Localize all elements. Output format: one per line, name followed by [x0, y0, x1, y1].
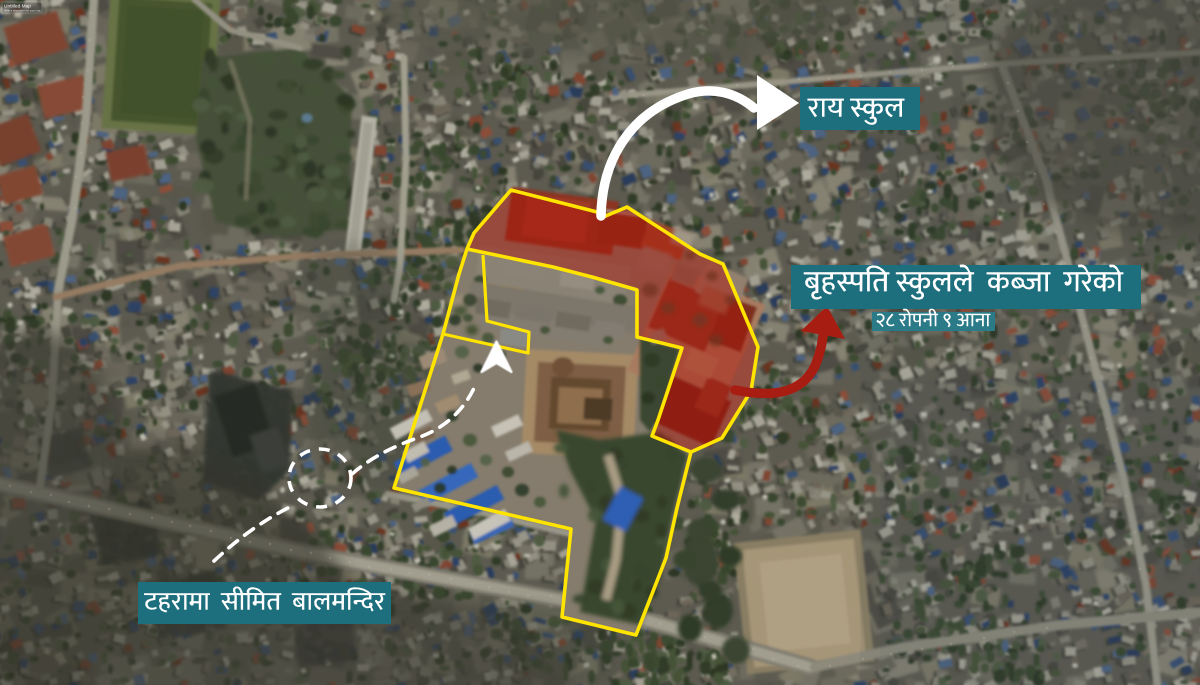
- svg-text:Write a description for your m: Write a description for your map: [4, 8, 41, 12]
